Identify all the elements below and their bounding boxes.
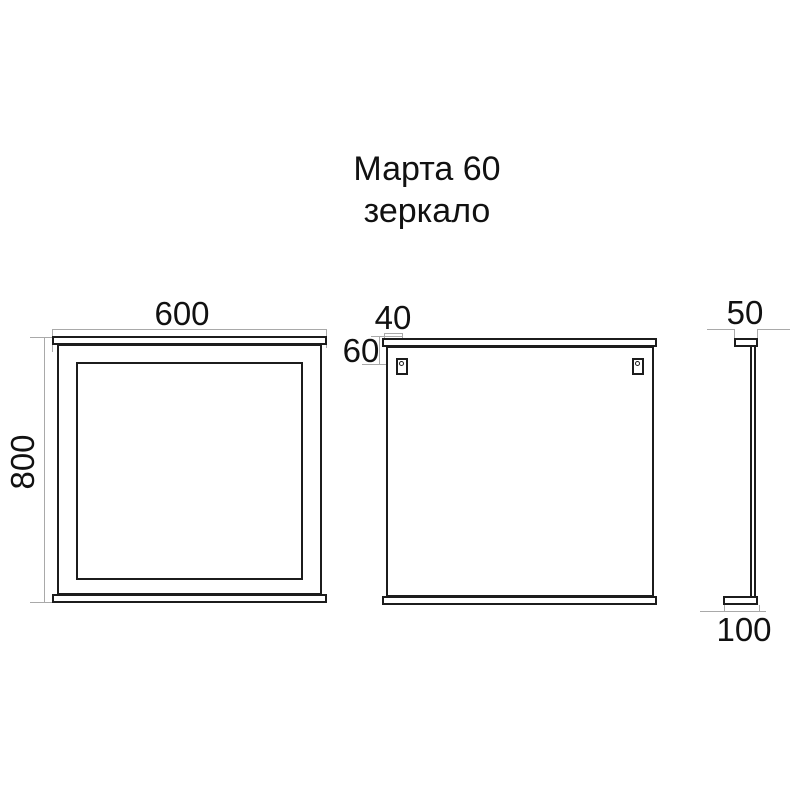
bracket-hole-right xyxy=(635,361,640,366)
dimension-line xyxy=(707,329,734,330)
side-bottom-shelf xyxy=(723,596,758,605)
dimension-line xyxy=(52,329,327,330)
dimension-line xyxy=(44,337,45,603)
bracket-hole-left xyxy=(399,361,404,366)
back-bottom-trim xyxy=(382,596,657,605)
side-top-trim xyxy=(734,338,758,347)
side-mirror-edge xyxy=(750,346,756,597)
back-hole-offset-x-label: 40 xyxy=(363,300,423,336)
product-title: Марта 60 зеркало xyxy=(277,148,577,232)
side-top-depth-label: 50 xyxy=(715,295,775,331)
side-bottom-depth-label: 100 xyxy=(704,612,784,648)
back-panel xyxy=(386,346,654,597)
dimension-tick xyxy=(734,329,735,338)
front-width-dimension-label: 600 xyxy=(132,296,232,332)
technical-drawing-canvas: Марта 60 зеркало 600 800 40 60 xyxy=(0,0,800,800)
product-name: Марта 60 xyxy=(277,148,577,190)
dimension-tick xyxy=(757,329,758,338)
dimension-line xyxy=(379,336,380,364)
back-top-trim xyxy=(382,338,657,347)
front-bottom-trim xyxy=(52,594,327,603)
front-mirror-glass xyxy=(76,362,303,580)
front-height-dimension-label: 800 xyxy=(5,402,45,522)
dimension-line xyxy=(757,329,790,330)
product-type: зеркало xyxy=(277,190,577,232)
front-top-trim xyxy=(52,336,327,345)
dimension-tick xyxy=(30,602,52,603)
dimension-tick xyxy=(371,336,402,337)
